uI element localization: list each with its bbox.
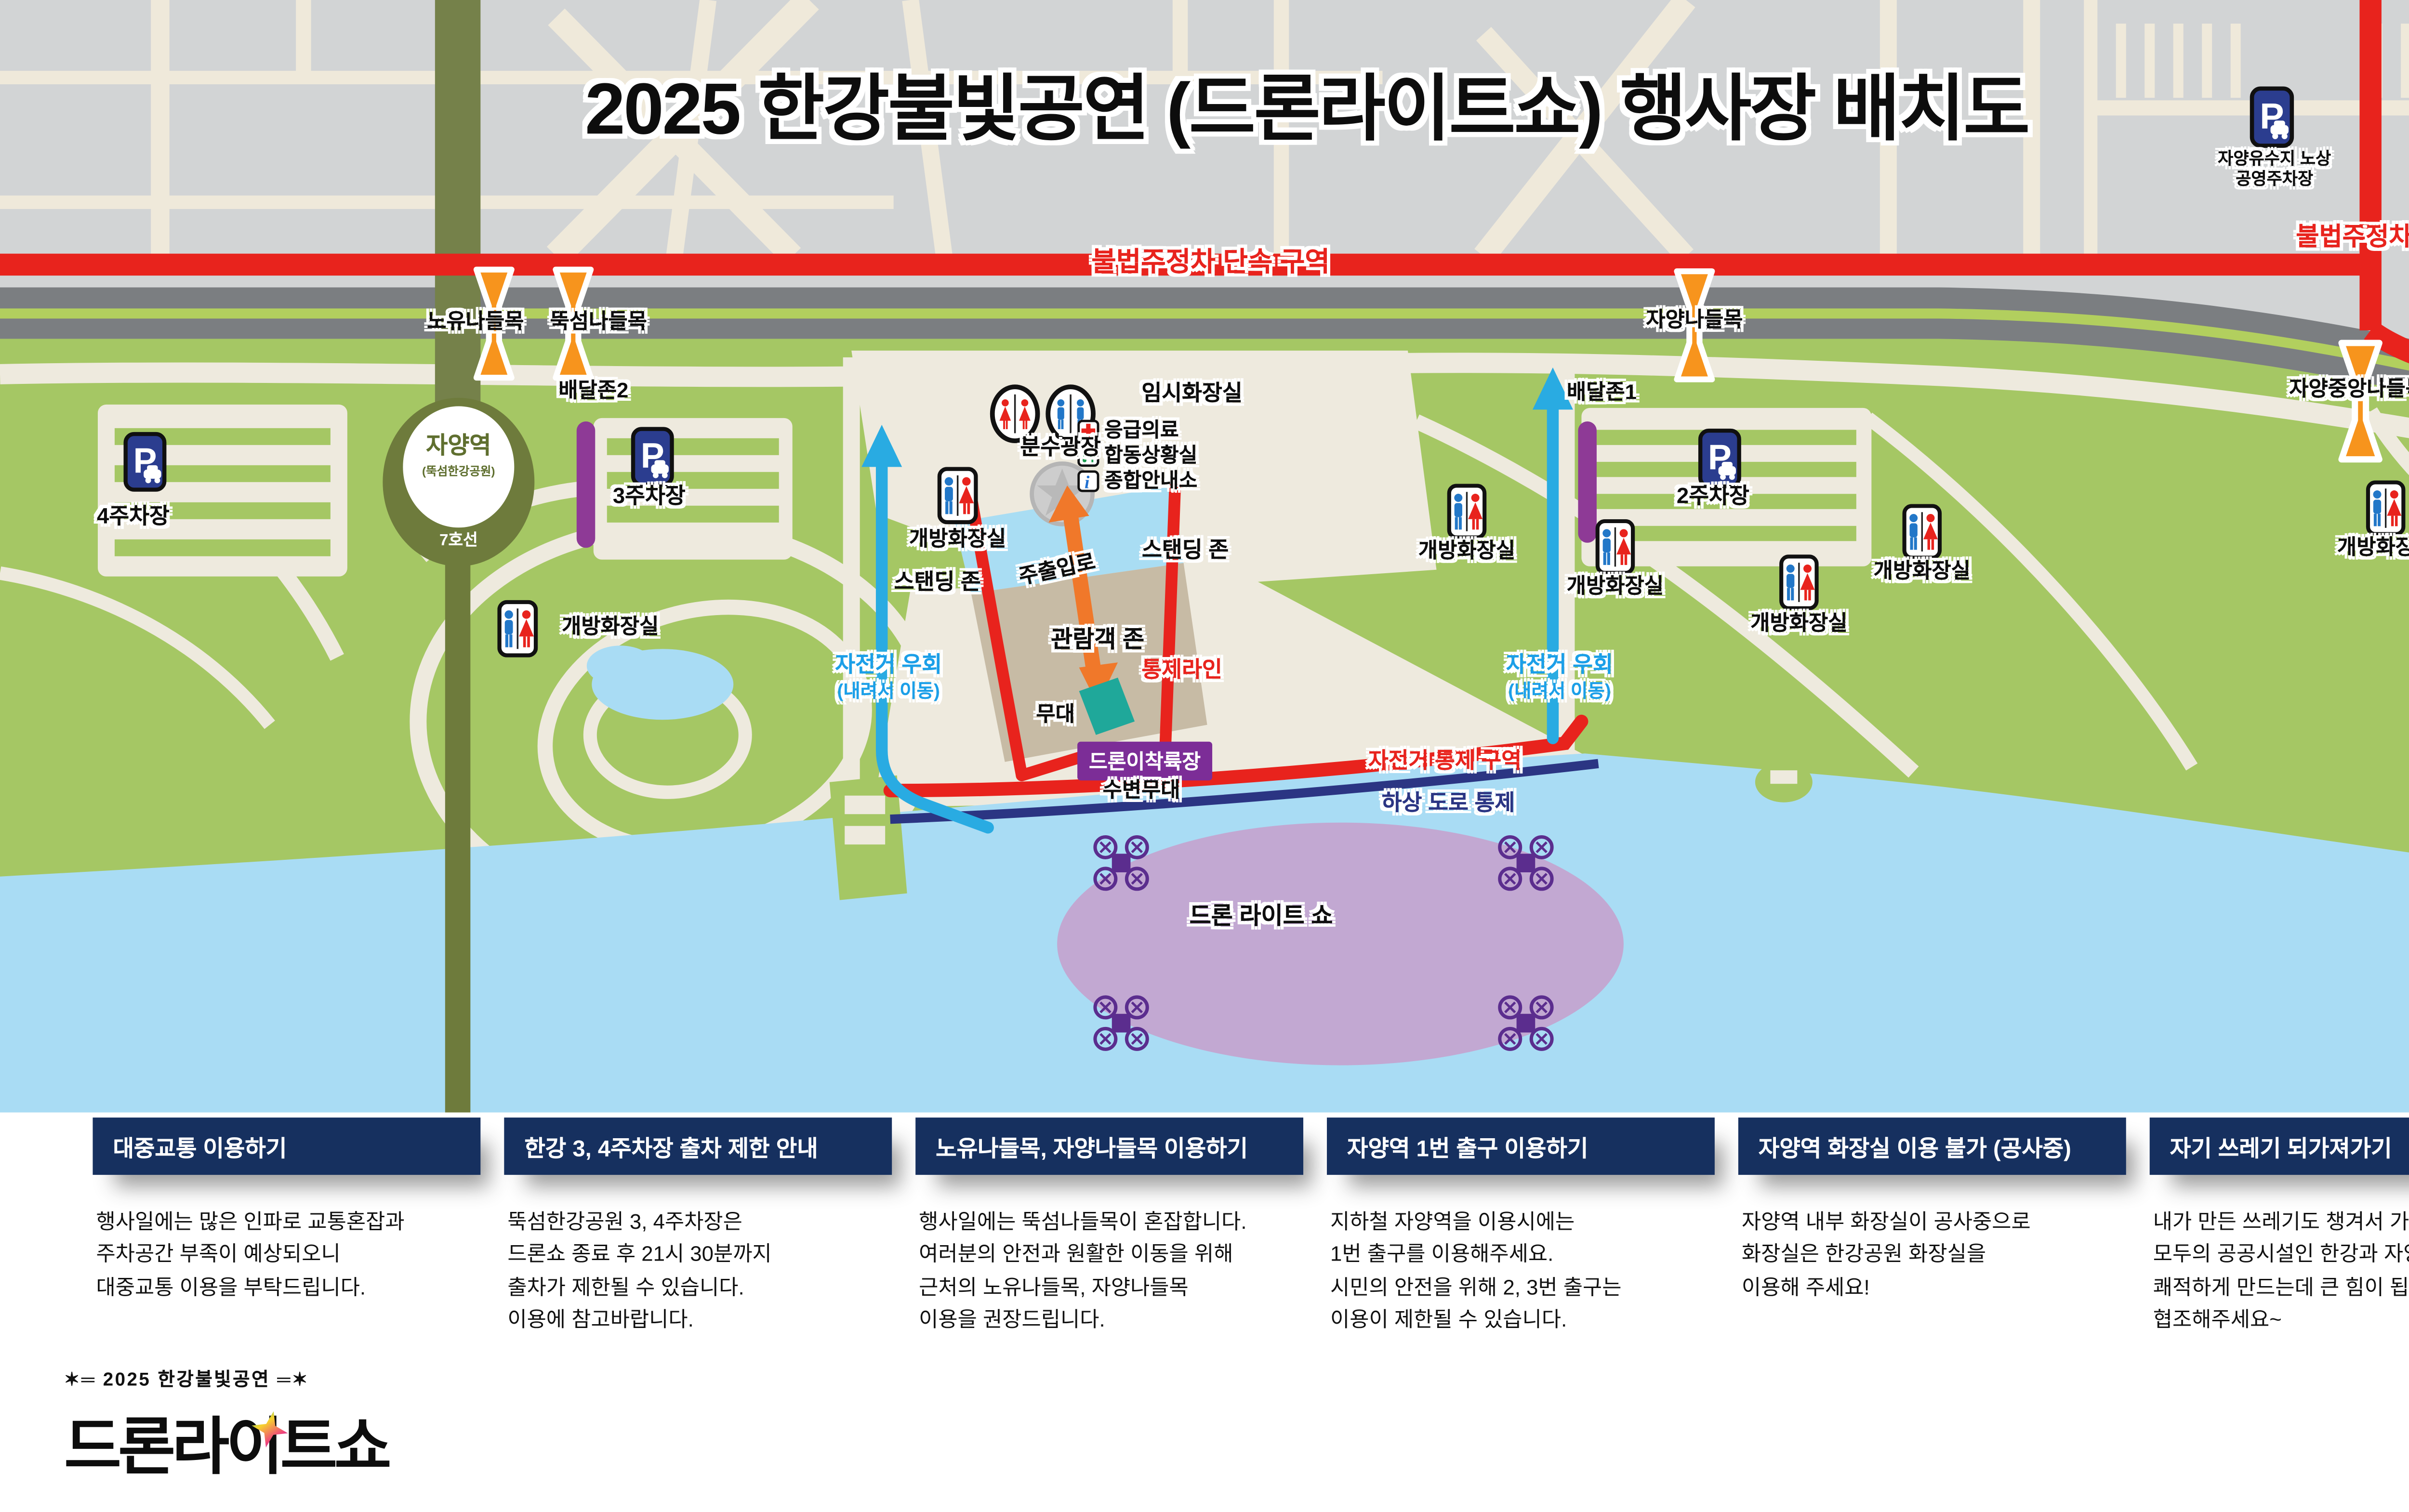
toilet-icon: [940, 469, 976, 523]
standing-zone-label-left: 스탠딩 존: [894, 571, 981, 596]
open-toilet-label: 개방화장실: [909, 527, 1006, 552]
bike-control-label: 자전거 통제 구역: [1368, 749, 1522, 775]
brand-line2: M!SOUL: [2401, 1405, 2409, 1448]
toilet-icon: [1905, 506, 1940, 557]
info-box-station-exit1: 자양역 1번 출구 이용하기 지하철 자양역을 이용시에는 1번 출구를 이용해…: [1327, 1118, 1715, 1338]
station-line: 7호선: [439, 534, 478, 552]
event-logo: ✶═ 2025 한강불빛공연 ═✶ 드론라이트쇼: [64, 1366, 519, 1487]
delivery-zone1-bar: [1578, 421, 1596, 543]
info-box-title: 노유나들목, 자양나들목 이용하기: [915, 1118, 1303, 1175]
delivery-zone1-label: 배달존1: [1567, 381, 1637, 405]
station-park-name: (뚝섬한강공원): [422, 467, 495, 480]
open-toilet-label: 개방화장실: [1567, 575, 1664, 599]
toilet-icon: [2368, 482, 2403, 534]
bike-detour-label-left: 자전거 우회: [835, 653, 942, 678]
bike-detour-sublabel-right: (내려서 이동): [1508, 682, 1611, 703]
info-center-label: 종합안내소: [1104, 471, 1197, 494]
station-name: 자양역: [426, 432, 491, 459]
parking-icon-p4: [126, 434, 164, 489]
toilet-icon: [1449, 486, 1484, 537]
seoul-my-soul-logo: SE♥UL M!SOUL: [2401, 1362, 2409, 1448]
info-box-body: 자양역 내부 화장실이 공사중으로 화장실은 한강공원 화장실을 이용해 주세요…: [1738, 1207, 2126, 1305]
info-box-body: 행사일에는 뚝섬나들목이 혼잡합니다. 여러분의 안전과 원활한 이동을 위해 …: [915, 1207, 1303, 1338]
info-box-take-trash: 자기 쓰레기 되가져가기 내가 만든 쓰레기도 챙겨서 가져가 주시면 모두의 …: [2150, 1118, 2409, 1338]
control-line-label: 통제라인: [1141, 658, 1222, 684]
gate-label-jayang: 자양나들목: [1646, 308, 1743, 332]
page-title: 2025 한강불빛공연 (드론라이트쇼) 행사장 배치도: [585, 69, 2028, 153]
parking-label-p3: 3주차장: [613, 485, 686, 510]
bike-detour-label-right: 자전거 우회: [1506, 653, 1613, 678]
open-toilet-label: 개방화장실: [2337, 536, 2409, 560]
reservoir-parking-label: 자양유수지 노상 공영주차장: [2218, 151, 2331, 189]
stage-label: 무대: [1036, 703, 1075, 727]
open-toilet-label: 개방화장실: [1418, 539, 1515, 563]
parking-icon-p3: [633, 429, 672, 485]
gate-label-noyu: 노유나들목: [427, 310, 524, 334]
medical-label: 응급의료: [1104, 420, 1179, 443]
delivery-zone2-bar: [577, 421, 595, 548]
parking-icon-p2: [1700, 431, 1739, 486]
waterside-stage-label: 수변무대: [1103, 778, 1180, 802]
situation-room-label: 합동상황실: [1104, 445, 1197, 468]
info-box-title: 자양역 1번 출구 이용하기: [1327, 1118, 1715, 1175]
gate-label-jayang-central: 자양중앙나들목: [2289, 377, 2409, 401]
no-parking-label-right: 불법주정차 단속 구역: [2296, 223, 2409, 252]
open-toilet-label: 개방화장실: [562, 615, 659, 639]
info-box-public-transit: 대중교통 이용하기 행사일에는 많은 인파로 교통혼잡과 주차공간 부족이 예상…: [93, 1118, 480, 1305]
info-box-title: 자기 쓰레기 되가져가기: [2150, 1118, 2409, 1175]
event-logo-title: 드론라이트쇼: [64, 1396, 519, 1487]
info-box-body: 행사일에는 많은 인파로 교통혼잡과 주차공간 부족이 예상되오니 대중교통 이…: [93, 1207, 480, 1305]
drone-pad-label: 드론이착륙장: [1077, 742, 1212, 780]
event-logo-subtitle: ✶═ 2025 한강불빛공연 ═✶: [64, 1366, 519, 1393]
brand-line1: SE♥UL: [2401, 1362, 2409, 1406]
info-box-use-gates: 노유나들목, 자양나들목 이용하기 행사일에는 뚝섬나들목이 혼잡합니다. 여러…: [915, 1118, 1303, 1338]
parking-label-p2: 2주차장: [1677, 485, 1749, 510]
temp-toilet-women-icon: [993, 387, 1038, 441]
info-box-body: 지하철 자양역을 이용시에는 1번 출구를 이용해주세요. 시민의 안전을 위해…: [1327, 1207, 1715, 1338]
poster: P: [0, 0, 2409, 1512]
fountain-label: 분수광장: [1020, 436, 1100, 461]
bike-detour-sublabel-left: (내려서 이동): [837, 682, 940, 703]
no-parking-label-center: 불법주정차 단속 구역: [1091, 249, 1330, 280]
open-toilet-label: 개방화장실: [1750, 612, 1847, 636]
standing-zone-label-right: 스탠딩 존: [1142, 539, 1229, 564]
parking-label-p4: 4주차장: [97, 505, 170, 530]
info-box-parking-exit-limit: 한강 3, 4주차장 출차 제한 안내 뚝섬한강공원 3, 4주차장은 드론쇼 …: [504, 1118, 892, 1338]
toilet-icon: [500, 602, 536, 656]
parking-icon-reservoir: [2252, 89, 2292, 146]
rainbow-star-icon: [251, 1411, 288, 1448]
info-box-title: 대중교통 이용하기: [93, 1118, 480, 1175]
river-road-closed-label: 하상 도로 통제: [1382, 791, 1515, 816]
footer: ✶═ 2025 한강불빛공연 ═✶ 드론라이트쇼 SE♥UL M!SOUL: [0, 1349, 2409, 1512]
info-box-body: 뚝섬한강공원 3, 4주차장은 드론쇼 종료 후 21시 30분까지 출차가 제…: [504, 1207, 892, 1338]
info-center-icon: [1079, 472, 1098, 492]
delivery-zone2-label: 배달존2: [558, 379, 628, 403]
gate-label-ttukseom: 뚝섬나들목: [550, 310, 647, 334]
info-box-title: 자양역 화장실 이용 불가 (공사중): [1738, 1118, 2126, 1175]
drone-show-label: 드론 라이트 쇼: [1190, 902, 1333, 929]
toilet-icon: [1781, 556, 1816, 608]
audience-zone-label: 관람객 존: [1051, 625, 1144, 652]
info-box-title: 한강 3, 4주차장 출차 제한 안내: [504, 1118, 892, 1175]
toilet-icon: [1598, 521, 1633, 573]
info-box-body: 내가 만든 쓰레기도 챙겨서 가져가 주시면 모두의 공공시설인 한강과 자양역…: [2150, 1207, 2409, 1338]
open-toilet-label: 개방화장실: [1874, 559, 1971, 583]
temp-toilet-label: 임시화장실: [1141, 382, 1242, 407]
venue-map: P: [0, 0, 2409, 1113]
info-box-station-toilet: 자양역 화장실 이용 불가 (공사중) 자양역 내부 화장실이 공사중으로 화장…: [1738, 1118, 2126, 1305]
info-section: 대중교통 이용하기 행사일에는 많은 인파로 교통혼잡과 주차공간 부족이 예상…: [0, 1113, 2409, 1366]
